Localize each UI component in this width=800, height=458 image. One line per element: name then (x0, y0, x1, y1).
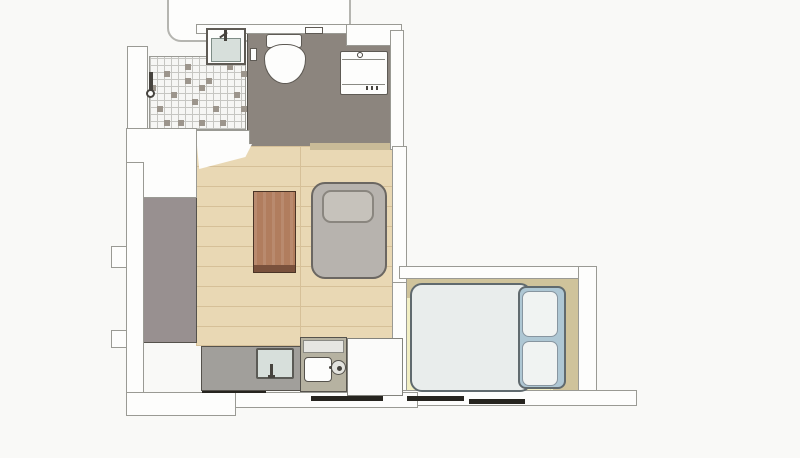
bed-duvet (410, 283, 532, 392)
toilet-paper-holder (250, 48, 257, 61)
burner-center-dot (337, 366, 342, 371)
washing-machine (340, 51, 388, 95)
window-bar-bedroom-1 (407, 396, 464, 401)
appliance-unit (347, 338, 403, 396)
kitchenette-mini-sink (304, 357, 332, 382)
shower-dark-tiles (150, 57, 156, 63)
window-bar-kitchen-right (311, 396, 383, 401)
wall-right-living (392, 146, 407, 284)
shower-tile-floor (149, 56, 246, 130)
kitchenette-unit (300, 337, 347, 392)
coffee-table-edge (254, 265, 295, 272)
sofa-pillow (322, 190, 374, 223)
bed-pillow-1 (522, 291, 558, 337)
window-bar-bedroom-2 (469, 399, 525, 404)
wall-bedroom-top (399, 266, 597, 279)
coffee-table (253, 191, 296, 273)
wall-bedroom-right (578, 266, 597, 394)
shower-valve-icon (146, 89, 155, 98)
kitchen-faucet-base-icon (268, 375, 275, 378)
washing-machine-controls (366, 86, 381, 90)
cooktop-burner-icon (331, 360, 346, 375)
bathroom-threshold (310, 143, 391, 150)
wall-left-notch-b (111, 330, 127, 348)
hallway-floor (143, 196, 197, 343)
wall-bottom-left-step (126, 392, 236, 416)
wall-left-notch-a (111, 246, 127, 268)
washing-machine-lid-line (342, 59, 385, 60)
kitchenette-tray (303, 340, 344, 353)
burner-knob-dot (329, 366, 332, 369)
floor-plan (0, 0, 800, 458)
vanity-basin (211, 38, 241, 62)
bed-pillow-2 (522, 341, 558, 386)
bathroom-shelf (305, 27, 323, 34)
washing-machine-knob-icon (357, 52, 363, 58)
wall-right-bathroom (390, 30, 404, 150)
sofa-bed (311, 182, 387, 279)
wall-left-mid (126, 162, 144, 396)
shower-pipe-icon (149, 72, 153, 90)
vanity-sink (206, 28, 246, 65)
kitchen-sink (256, 348, 294, 379)
